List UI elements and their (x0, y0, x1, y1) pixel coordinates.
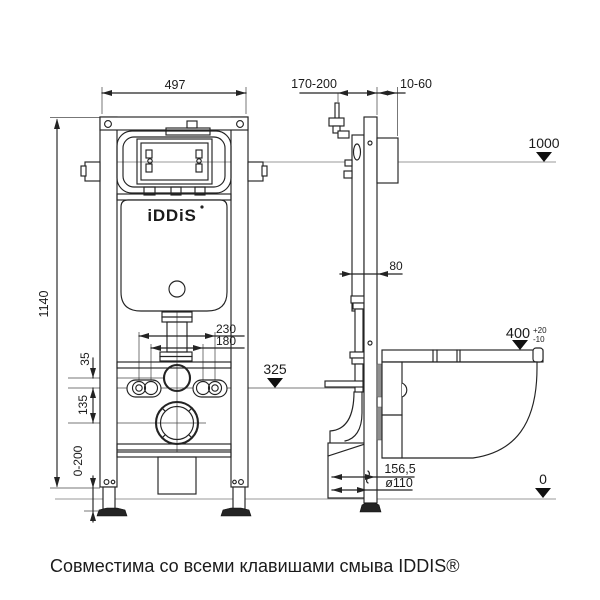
dim-wall-finish: 10-60 (400, 77, 432, 91)
adjustable-feet (97, 480, 251, 516)
dim-drain-offset: 135 (76, 395, 90, 415)
dim-front-height: 1140 (37, 291, 51, 318)
flush-box-side (377, 138, 398, 183)
level-label-325: 325 (263, 361, 287, 377)
foot-side (360, 503, 381, 512)
technical-drawing: iDDiS (0, 0, 600, 600)
drain-support-plate (158, 457, 196, 494)
drain-elbow (325, 381, 365, 498)
level-label-1000: 1000 (528, 135, 559, 151)
level-label-0: 0 (539, 471, 547, 487)
seat (382, 350, 543, 362)
toilet-bowl (377, 348, 543, 458)
level-marker-0 (535, 488, 551, 498)
dim-pipe-offset: 35 (78, 352, 92, 366)
water-inlet (329, 103, 349, 138)
cistern-side (344, 135, 364, 311)
bowl-profile (382, 362, 537, 458)
dim-bowl-height-tol-minus: -10 (533, 335, 545, 344)
wall-bracket-right (248, 162, 263, 181)
support-bracket (325, 381, 363, 387)
dim-bowl-height-tol-plus: +20 (533, 326, 547, 335)
level-marker-325 (267, 378, 283, 388)
level-marker-1000 (536, 152, 552, 162)
dim-profile-depth: 80 (389, 259, 403, 273)
wall-bracket-left (85, 162, 100, 181)
product-dimensions-drawing: iDDiS (0, 0, 600, 600)
dim-install-depth: 170-200 (291, 77, 337, 91)
cistern: iDDiS (121, 200, 227, 311)
front-view: iDDiS (81, 117, 267, 516)
side-view (325, 103, 543, 512)
logo-trademark-dot (200, 205, 203, 208)
brand-logo: iDDiS (147, 206, 196, 225)
dim-drain-to-wall: 156,5 (384, 462, 415, 476)
dim-feet-range: 0-200 (71, 445, 85, 476)
dim-front-width: 497 (165, 78, 186, 92)
compatibility-caption: Совместима со всеми клавишами смыва IDDI… (50, 556, 570, 577)
dim-bolt-spacing-inner: 180 (216, 334, 236, 348)
dim-drain-diameter: ø110 (385, 476, 413, 490)
dim-bowl-height: 400 (506, 326, 530, 342)
lower-crossbar (117, 444, 231, 450)
